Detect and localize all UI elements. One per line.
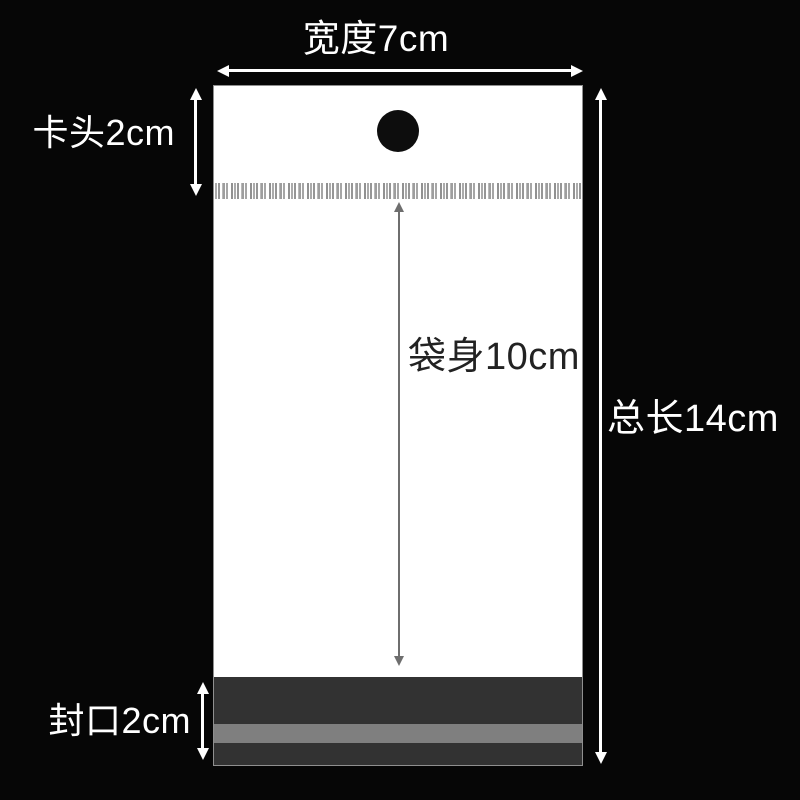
total-length-arrow — [594, 88, 607, 764]
seal-arrow — [196, 682, 209, 760]
body-dimension-label: 袋身10cm — [408, 334, 580, 380]
seal-band-gray — [214, 724, 582, 743]
arrow-head-up-icon — [394, 202, 404, 212]
arrow-head-down-icon — [595, 752, 607, 764]
seal-band-dark-top — [214, 677, 582, 724]
bag-dimension-diagram: 宽度7cm 卡头2cm 袋身10cm 总长14cm 封口2cm — [0, 0, 800, 800]
header-dimension-label: 卡头2cm — [0, 110, 175, 156]
arrow-line — [201, 691, 204, 751]
width-dimension-label: 宽度7cm — [176, 16, 576, 62]
arrow-head-right-icon — [571, 65, 583, 77]
arrow-head-up-icon — [595, 88, 607, 100]
arrow-head-left-icon — [217, 65, 229, 77]
seal-strip — [214, 677, 582, 765]
seal-band-dark-bottom — [214, 743, 582, 765]
header-arrow — [189, 88, 202, 196]
arrow-head-down-icon — [190, 184, 202, 196]
arrow-line — [398, 210, 400, 658]
body-length-arrow — [392, 202, 405, 666]
arrow-head-down-icon — [394, 656, 404, 666]
arrow-line — [599, 97, 602, 755]
hang-hole-icon — [377, 110, 419, 152]
width-arrow — [217, 64, 583, 77]
arrow-line — [194, 97, 197, 187]
arrow-head-up-icon — [197, 682, 209, 694]
total-length-dimension-label: 总长14cm — [607, 396, 779, 442]
perforation-line — [215, 183, 581, 199]
arrow-head-down-icon — [197, 748, 209, 760]
arrow-head-up-icon — [190, 88, 202, 100]
seal-dimension-label: 封口2cm — [0, 698, 191, 744]
arrow-line — [226, 69, 574, 72]
